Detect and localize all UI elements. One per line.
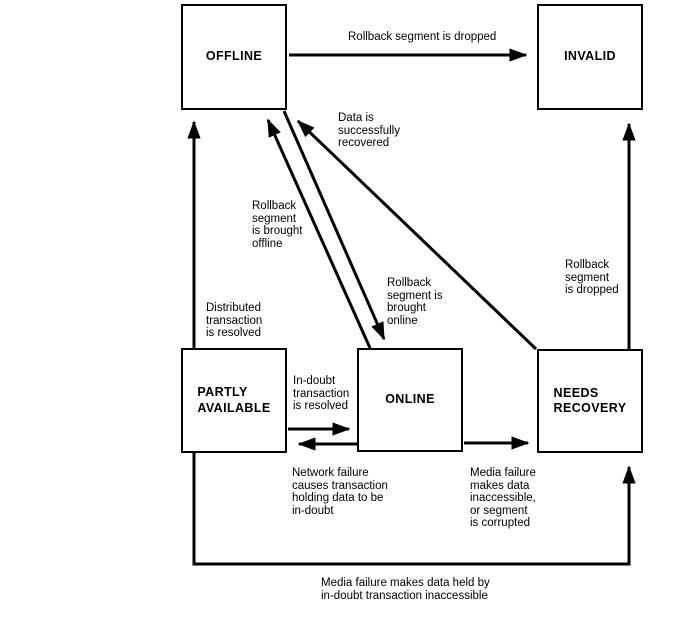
arrow-partly-to-needs [194, 453, 629, 564]
transition-label-distributed-resolved: Distributed transaction is resolved [206, 302, 262, 340]
state-transition-diagram: OFFLINE INVALID PARTLY AVAILABLE ONLINE … [0, 0, 688, 641]
state-label-needs-recovery: NEEDS RECOVERY [554, 386, 627, 417]
transition-label-network-failure: Network failure causes transaction holdi… [292, 467, 388, 517]
state-box-partly-available: PARTLY AVAILABLE [181, 348, 287, 453]
state-box-invalid: INVALID [537, 4, 643, 110]
transition-label-rollback-dropped-top: Rollback segment is dropped [348, 31, 496, 44]
state-label-invalid: INVALID [564, 49, 616, 65]
state-label-partly-available: PARTLY AVAILABLE [197, 385, 270, 416]
transition-label-media-failure-segment: Media failure makes data inaccessible, o… [470, 467, 536, 530]
transition-label-rollback-dropped-right: Rollback segment is dropped [565, 259, 619, 297]
state-label-offline: OFFLINE [206, 49, 262, 65]
transition-label-data-recovered: Data is successfully recovered [338, 112, 400, 150]
state-box-offline: OFFLINE [181, 4, 287, 110]
transition-label-indoubt-resolved: In-doubt transaction is resolved [293, 375, 349, 413]
transition-label-brought-offline: Rollback segment is brought offline [252, 200, 303, 250]
transition-label-media-failure-indoubt: Media failure makes data held by in-doub… [321, 577, 490, 602]
state-box-needs-recovery: NEEDS RECOVERY [537, 349, 643, 453]
transition-label-brought-online: Rollback segment is brought online [387, 277, 443, 327]
state-box-online: ONLINE [357, 348, 463, 452]
state-label-online: ONLINE [385, 392, 435, 408]
